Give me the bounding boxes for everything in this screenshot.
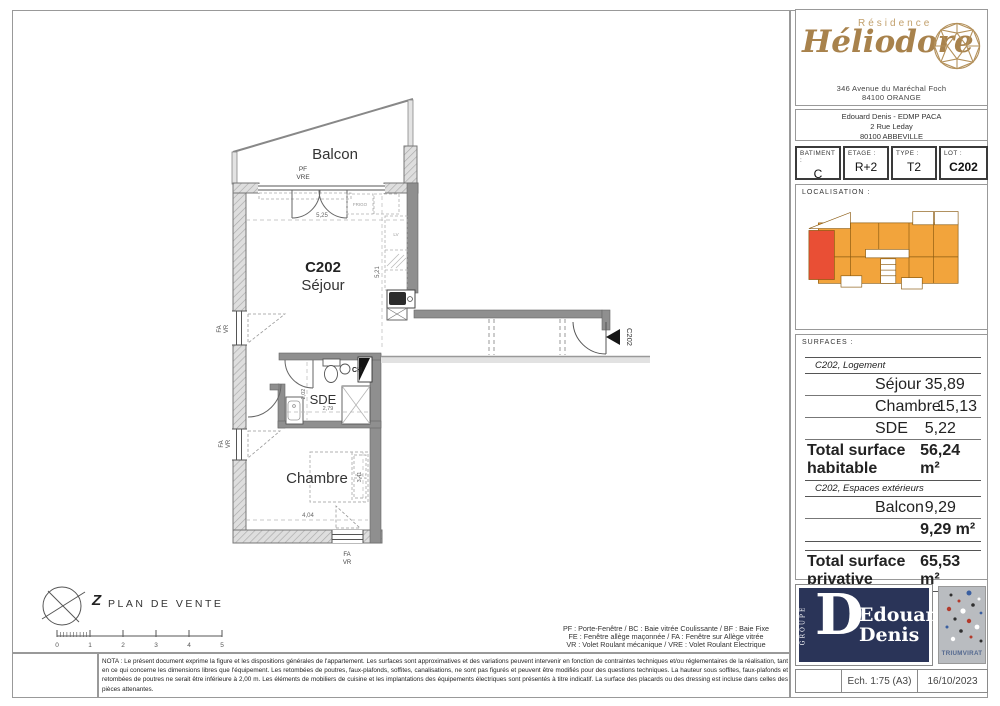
lot-cell-type: TYPE : T2 <box>891 146 937 180</box>
batiment-value: C <box>797 167 839 181</box>
dim-sejour-width: 5,25 <box>316 213 328 219</box>
triumvirat-label: TRIUMVIRAT <box>939 650 985 657</box>
surface-value: 9,29 <box>925 499 981 517</box>
nota-text: NOTA : Le présent document exprime la fi… <box>102 657 788 694</box>
surface-value: 35,89 <box>925 376 981 394</box>
window1-fa-label: FA <box>217 325 223 332</box>
etage-label: ETAGE : <box>845 148 887 157</box>
promoter-line-3: 80100 ABBEVILLE <box>796 132 987 142</box>
lot-cell-etage: ETAGE : R+2 <box>843 146 889 180</box>
entry-unit-label: C202 <box>625 328 634 346</box>
floor-plan-drawing: C202 <box>0 0 792 652</box>
surface-name: SDE <box>875 420 925 438</box>
groupe-label: GROUPE <box>799 606 806 646</box>
scale-tick-5: 5 <box>220 642 224 649</box>
water-heater-icon <box>340 364 350 374</box>
compass-icon <box>42 587 85 625</box>
residence-logo-box: Résidence Héliodore 346 Avenue du Maréch… <box>795 9 988 106</box>
total-habitable-row: Total surface habitable 56,24 m² <box>805 440 981 481</box>
sde-door <box>285 360 313 388</box>
promoter-box: Edouard Denis - EDMP PACA 2 Rue Leday 80… <box>795 109 988 141</box>
dim-sde-height: 2,02 <box>301 389 307 400</box>
room-label-balcon: Balcon <box>312 146 358 163</box>
surface-row-chambre: Chambre 15,13 <box>805 396 981 418</box>
lv-label: LV <box>393 232 398 237</box>
toilet-tank <box>323 359 340 366</box>
entry-arrow-icon <box>606 329 620 345</box>
localisation-label: LOCALISATION : <box>796 185 987 196</box>
promoter-line-1: Edouard Denis - EDMP PACA <box>796 112 987 122</box>
scale-tick-0: 0 <box>55 642 59 649</box>
divider-horizontal-nota <box>12 652 790 654</box>
scale-tick-3: 3 <box>154 642 158 649</box>
balcony-pf-label: PF <box>299 166 307 173</box>
edouard-denis-logo-box: GROUPE D Edouard Denis <box>795 584 933 666</box>
lot-cell-lot: LOT : C202 <box>939 146 988 180</box>
divider-vertical-nota <box>97 652 99 698</box>
scale-tick-2: 2 <box>121 642 125 649</box>
window-left-upper <box>232 311 285 345</box>
lot-label: LOT : <box>941 148 986 157</box>
brand-name-line1: Edouard <box>859 604 949 626</box>
brand-name-line2: Denis <box>859 624 919 646</box>
dim-chambre-width: 4,04 <box>302 513 314 519</box>
window1-vr-label: VR <box>224 324 230 333</box>
total-habitable-label: Total surface habitable <box>807 442 920 478</box>
surface-row-balcon: Balcon 9,29 <box>805 497 981 519</box>
surface-row-sejour: Séjour 35,89 <box>805 374 981 396</box>
scale-bar <box>57 630 222 637</box>
type-value: T2 <box>893 160 935 174</box>
triumvirat-dots <box>939 587 987 647</box>
localisation-box: LOCALISATION : <box>795 184 988 330</box>
abbreviation-legend: PF : Porte-Fenêtre / BC : Baie vitrée Co… <box>543 625 789 649</box>
room-label-chambre: Chambre <box>286 470 348 487</box>
window2-fa-label: FA <box>219 440 225 447</box>
ch-label: CH <box>352 367 362 374</box>
logo-initial: D <box>815 582 864 648</box>
titleblock-empty-cell <box>795 669 842 693</box>
frigo-label: FRIGO <box>353 202 368 207</box>
kitchen: FRIGO LV <box>347 194 415 320</box>
subtotal-exterior-row: 9,29 m² <box>805 519 981 542</box>
residence-address: 346 Avenue du Maréchal Foch 84100 ORANGE <box>796 85 987 102</box>
diamond-gem-icon <box>931 18 983 74</box>
surfaces-group1-title: C202, Logement <box>805 357 981 374</box>
titleblock-date: 16/10/2023 <box>917 669 988 693</box>
lot-value: C202 <box>941 160 986 174</box>
edouard-denis-logo: GROUPE D Edouard Denis <box>799 588 929 662</box>
batiment-label: BATIMENT : <box>797 148 839 164</box>
window-bottom <box>332 506 363 543</box>
scale-tick-1: 1 <box>88 642 92 649</box>
surface-name: Balcon <box>875 499 925 517</box>
surface-name: Chambre <box>875 398 937 416</box>
promoter-line-2: 2 Rue Leday <box>796 122 987 132</box>
plan-de-vente-sheet: { "sheet": { "residence_label": "Résiden… <box>0 0 1000 706</box>
surface-value: 15,13 <box>937 398 981 416</box>
lot-cell-batiment: BATIMENT : C <box>795 146 841 180</box>
scale-tick-4: 4 <box>187 642 191 649</box>
window-left-lower <box>232 429 280 460</box>
surfaces-box: SURFACES : C202, Logement Séjour 35,89 C… <box>795 334 988 580</box>
legend-line-3: VR : Volet Roulant mécanique / VRE : Vol… <box>543 641 789 649</box>
dim-sejour-height: 5,21 <box>375 266 381 278</box>
surfaces-group2-title: C202, Espaces extérieurs <box>805 481 981 497</box>
type-label: TYPE : <box>893 148 935 157</box>
surface-row-sde: SDE 5,22 <box>805 418 981 440</box>
titleblock-scale: Ech. 1:75 (A3) <box>841 669 918 693</box>
window3-vr-label: VR <box>343 560 352 566</box>
surface-name: Séjour <box>875 376 925 394</box>
balcony-outline <box>232 99 417 184</box>
window2-vr-label: VR <box>226 439 232 448</box>
total-habitable-value: 56,24 m² <box>920 442 981 478</box>
dim-chambre-height: 3,41 <box>357 472 363 483</box>
balcony-vre-label: VRE <box>296 174 310 181</box>
triumvirat-logo-box: TRIUMVIRAT <box>938 586 986 664</box>
surfaces-label: SURFACES : <box>796 335 987 346</box>
localisation-map <box>807 205 977 305</box>
plan-title: PLAN DE VENTE <box>108 598 223 610</box>
entry-door <box>573 322 606 354</box>
north-letter: Z <box>91 592 102 609</box>
toilet-bowl <box>325 366 338 383</box>
subtotal-exterior-value: 9,29 m² <box>920 521 981 539</box>
window3-fa-label: FA <box>343 552 350 558</box>
unit-number-label: C202 <box>305 259 341 276</box>
etage-value: R+2 <box>845 160 887 174</box>
address-line-2: 84100 ORANGE <box>796 94 987 103</box>
room-label-sejour: Séjour <box>301 277 344 294</box>
room-label-sde: SDE <box>310 392 337 407</box>
surface-value: 5,22 <box>925 420 981 438</box>
